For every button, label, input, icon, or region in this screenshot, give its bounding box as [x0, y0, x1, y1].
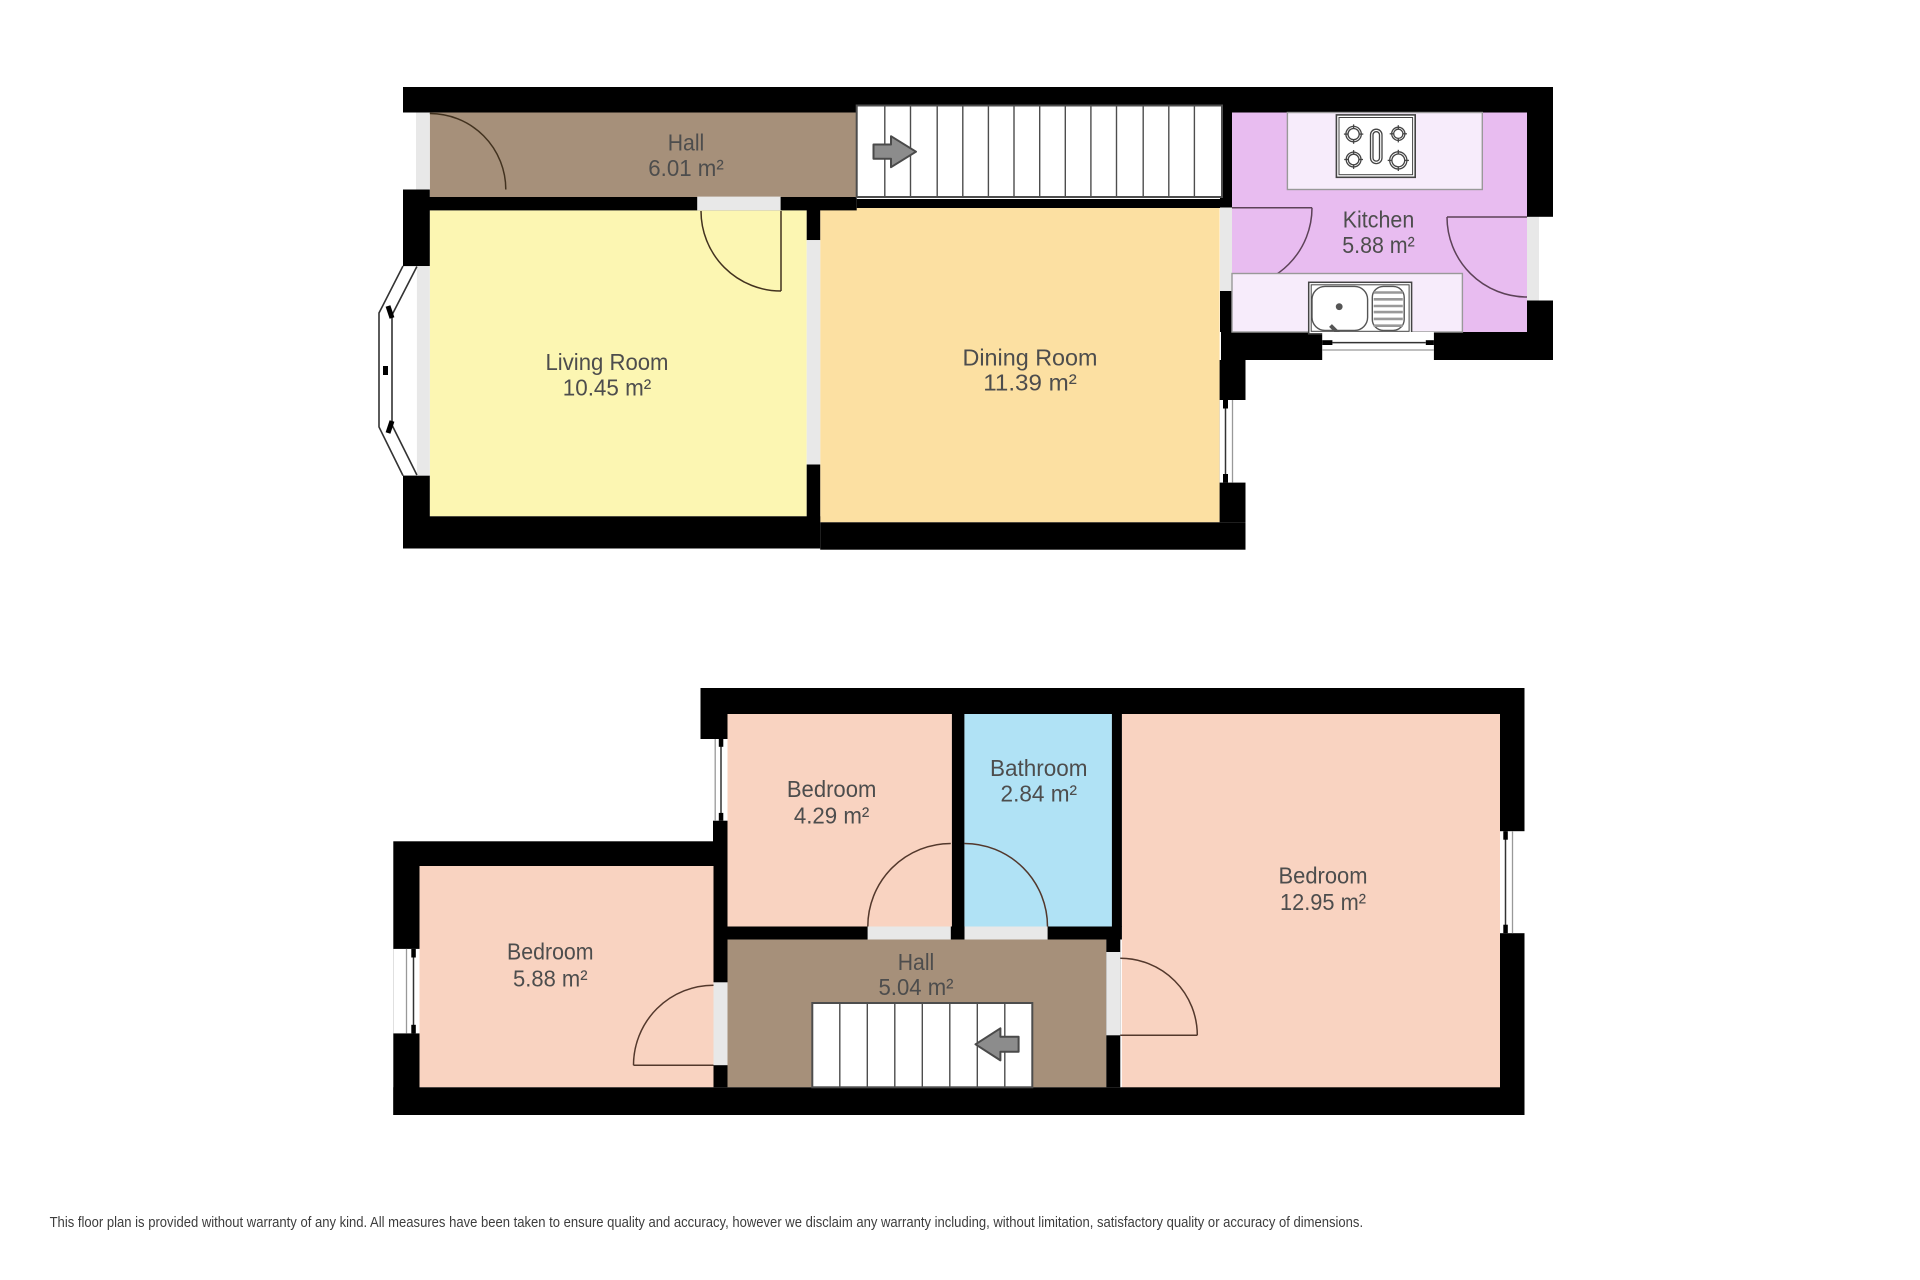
svg-text:Bedroom: Bedroom	[1279, 863, 1368, 889]
svg-text:12.95 m²: 12.95 m²	[1280, 889, 1366, 915]
svg-text:Hall: Hall	[668, 130, 705, 156]
svg-text:5.88 m²: 5.88 m²	[1342, 232, 1415, 258]
svg-text:Dining Room: Dining Room	[963, 344, 1098, 370]
svg-text:This floor plan is provided wi: This floor plan is provided without warr…	[50, 1215, 1364, 1231]
svg-text:Living Room: Living Room	[546, 349, 669, 375]
svg-text:Hall: Hall	[898, 949, 935, 975]
svg-text:5.88 m²: 5.88 m²	[513, 965, 588, 991]
svg-text:5.04 m²: 5.04 m²	[879, 974, 954, 1000]
svg-text:Bedroom: Bedroom	[507, 939, 594, 965]
svg-text:4.29 m²: 4.29 m²	[794, 803, 870, 829]
svg-text:Bedroom: Bedroom	[787, 776, 877, 802]
svg-text:2.84 m²: 2.84 m²	[1001, 781, 1078, 807]
svg-text:Bathroom: Bathroom	[990, 755, 1088, 781]
svg-text:11.39 m²: 11.39 m²	[983, 370, 1077, 396]
svg-text:Kitchen: Kitchen	[1343, 207, 1415, 233]
svg-text:6.01 m²: 6.01 m²	[648, 155, 724, 181]
svg-text:10.45 m²: 10.45 m²	[563, 375, 652, 401]
